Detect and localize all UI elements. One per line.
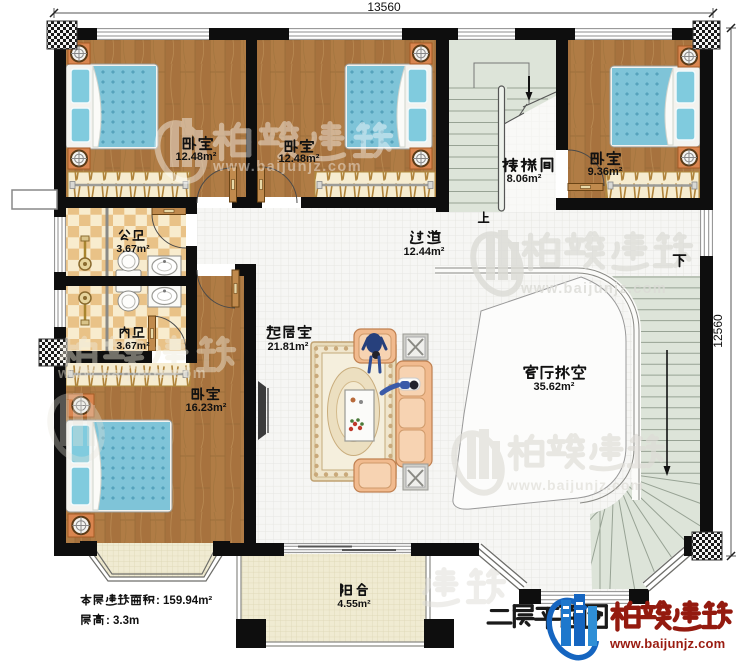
- svg-text:www.baijunjz.com: www.baijunjz.com: [609, 636, 725, 651]
- svg-text:21.81m²: 21.81m²: [268, 341, 309, 353]
- svg-text:35.62m²: 35.62m²: [534, 381, 575, 393]
- svg-text:8.06m²: 8.06m²: [507, 173, 542, 185]
- svg-text:www.baijunjz.com: www.baijunjz.com: [506, 477, 644, 493]
- svg-text:3.67m²: 3.67m²: [116, 340, 150, 352]
- svg-text:www.baijunjz.com: www.baijunjz.com: [57, 366, 207, 382]
- svg-text:12.44m²: 12.44m²: [404, 246, 445, 258]
- svg-text:13560: 13560: [367, 0, 401, 14]
- svg-text:3.67m²: 3.67m²: [116, 243, 150, 255]
- svg-text:16.23m²: 16.23m²: [186, 402, 227, 414]
- svg-text:: 3.3m: : 3.3m: [106, 615, 139, 627]
- svg-text:9.36m²: 9.36m²: [588, 166, 623, 178]
- svg-text:: 159.94m²: : 159.94m²: [156, 595, 212, 607]
- svg-text:12560: 12560: [711, 314, 725, 348]
- svg-text:12.48m²: 12.48m²: [279, 153, 320, 165]
- svg-text:4.55m²: 4.55m²: [337, 598, 371, 610]
- svg-text:www.baijunjz.com: www.baijunjz.com: [520, 281, 667, 297]
- svg-text:12.48m²: 12.48m²: [176, 151, 217, 163]
